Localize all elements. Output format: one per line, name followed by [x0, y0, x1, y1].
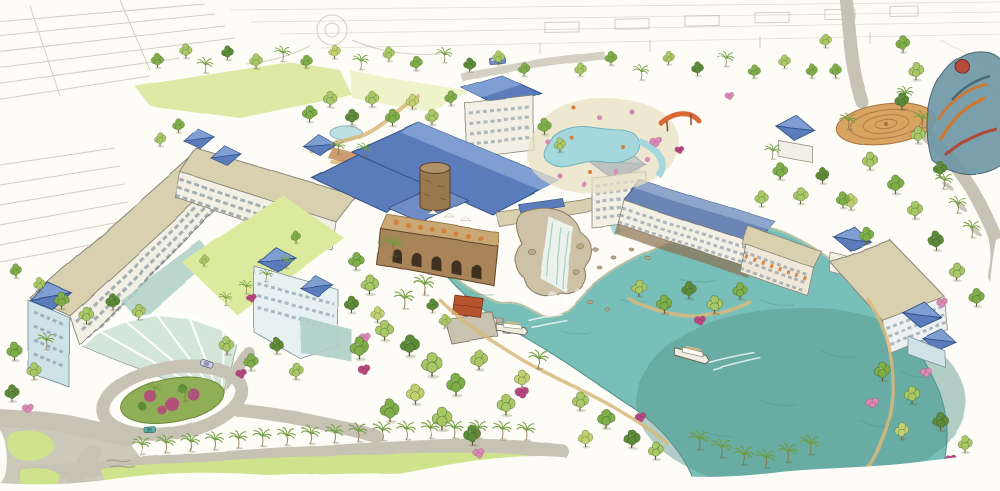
watercolor-rendering: Aerial watercolor rendering of a lakesid…	[0, 0, 1000, 491]
car	[144, 427, 156, 434]
water-park-cap	[955, 59, 969, 73]
stone-turret	[420, 163, 450, 211]
rendering-canvas: Aerial watercolor rendering of a lakesid…	[0, 0, 1000, 491]
